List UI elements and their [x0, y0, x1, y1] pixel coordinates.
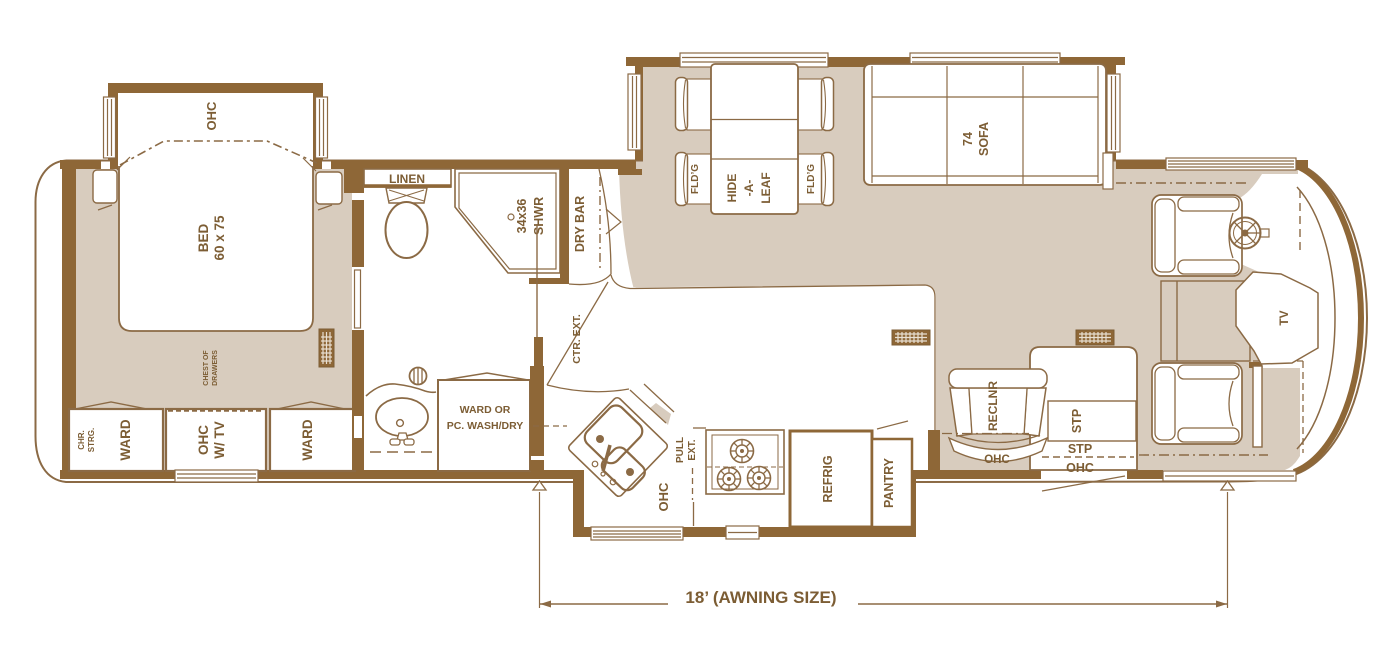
svg-text:LEAF: LEAF: [759, 172, 773, 203]
svg-text:PULL: PULL: [675, 437, 686, 463]
svg-text:STP: STP: [1068, 442, 1092, 456]
svg-text:WARD: WARD: [300, 419, 315, 460]
svg-text:CHR.: CHR.: [77, 430, 86, 450]
svg-text:OHC: OHC: [196, 425, 211, 455]
svg-text:DRAWERS: DRAWERS: [212, 350, 219, 386]
svg-text:WARD: WARD: [118, 419, 133, 460]
svg-text:CHEST OF: CHEST OF: [203, 350, 210, 386]
svg-text:74: 74: [961, 132, 975, 146]
svg-text:REFRIG: REFRIG: [821, 455, 835, 502]
svg-text:STP: STP: [1070, 409, 1084, 433]
svg-text:PANTRY: PANTRY: [882, 457, 896, 508]
svg-text:DRY BAR: DRY BAR: [573, 196, 587, 252]
svg-text:-A-: -A-: [742, 180, 756, 197]
svg-text:WARD OR: WARD OR: [460, 404, 511, 416]
svg-text:34x36: 34x36: [515, 199, 529, 234]
svg-text:CTR. EXT.: CTR. EXT.: [571, 314, 583, 364]
svg-text:FLD’G: FLD’G: [690, 164, 701, 194]
svg-text:BED: BED: [196, 224, 211, 253]
svg-text:OHC: OHC: [1066, 461, 1094, 475]
svg-text:TV: TV: [1277, 310, 1291, 325]
svg-text:PC. WASH/DRY: PC. WASH/DRY: [447, 420, 524, 432]
svg-text:SOFA: SOFA: [977, 122, 991, 156]
svg-text:OHC: OHC: [984, 454, 1010, 466]
svg-text:LINEN: LINEN: [389, 172, 425, 186]
svg-text:OHC: OHC: [204, 101, 219, 131]
svg-text:SHWR: SHWR: [532, 197, 546, 235]
svg-text:STRG.: STRG.: [87, 428, 96, 452]
svg-text:FLD’G: FLD’G: [806, 164, 817, 194]
svg-text:RECLNR: RECLNR: [986, 381, 1000, 431]
svg-text:HIDE: HIDE: [725, 174, 739, 203]
svg-text:60 x 75: 60 x 75: [212, 215, 227, 261]
svg-text:EXT.: EXT.: [687, 439, 698, 460]
svg-text:OHC: OHC: [656, 482, 671, 512]
svg-text:W/ TV: W/ TV: [212, 421, 227, 459]
svg-text:18’ (AWNING SIZE): 18’ (AWNING SIZE): [685, 588, 836, 607]
